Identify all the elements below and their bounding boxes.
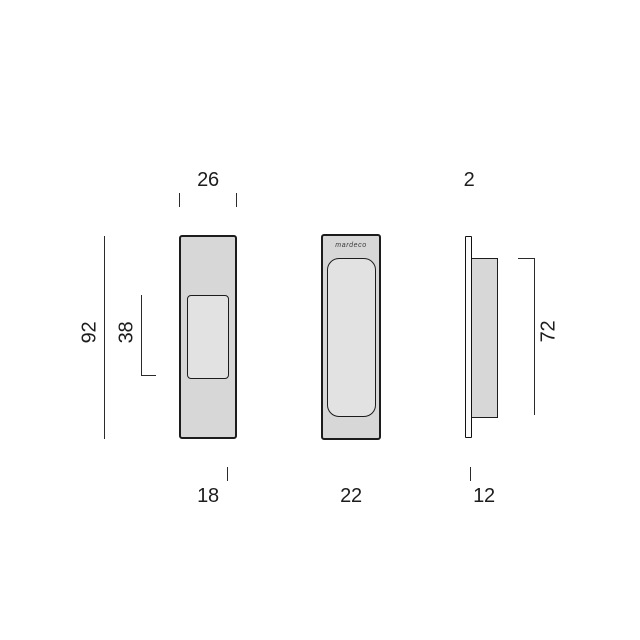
dim-line-overall-height bbox=[104, 236, 105, 439]
face-recess-outline bbox=[327, 258, 376, 417]
technical-drawing-canvas: 26 92 38 18 mardeco 22 2 72 bbox=[0, 0, 640, 640]
dim-label-body-height: 72 bbox=[540, 312, 559, 352]
dim-label-side-bottom: 12 bbox=[464, 487, 504, 506]
front-pocket-outline bbox=[187, 295, 229, 379]
side-faceplate-outline bbox=[465, 236, 472, 438]
dim-label-face-bottom: 22 bbox=[331, 487, 371, 506]
dim-label-pocket-height: 38 bbox=[118, 313, 137, 353]
dim-tick bbox=[236, 193, 237, 207]
dim-line-body-height bbox=[518, 258, 535, 415]
dim-tick bbox=[179, 193, 180, 207]
side-body-outline bbox=[471, 258, 498, 418]
dim-label-front-width: 26 bbox=[188, 171, 228, 190]
dim-line-pocket-height bbox=[141, 295, 156, 376]
dim-label-faceplate-thickness: 2 bbox=[449, 171, 489, 190]
brand-logo-text: mardeco bbox=[321, 241, 381, 250]
dim-tick bbox=[470, 467, 471, 481]
dim-label-overall-height: 92 bbox=[81, 313, 100, 353]
dim-label-front-bottom: 18 bbox=[188, 487, 228, 506]
dim-tick bbox=[227, 467, 228, 481]
